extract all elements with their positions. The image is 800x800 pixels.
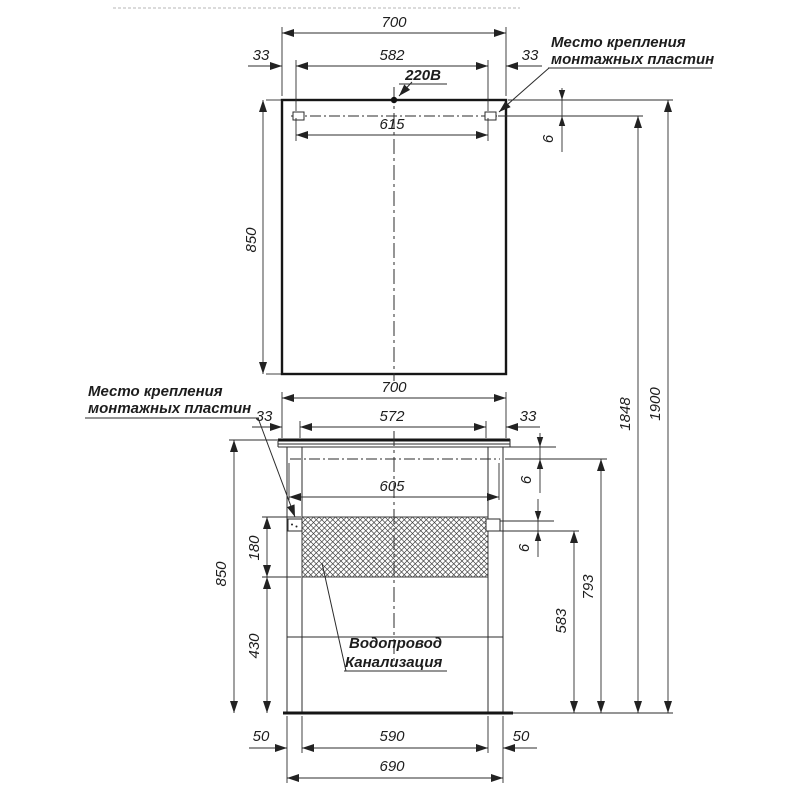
dim-base-width: 690: [379, 758, 405, 775]
dim-leg-left: 50: [253, 728, 270, 745]
dim-mirror-plate-gap: 6: [540, 134, 557, 143]
dim-mirror-plate-outer: 615: [379, 116, 405, 133]
dim-leg-right: 50: [513, 728, 530, 745]
plumbing-line1: Водопровод: [349, 635, 442, 652]
power-point-dot: [391, 97, 397, 103]
mirror-mount-plate-right: [485, 112, 496, 120]
power-callout: 220В: [399, 67, 447, 96]
dim-plate-height-from-floor: 583: [553, 608, 570, 634]
dim-mirror-width: 700: [381, 14, 407, 31]
vanity-mount-plate-right: [486, 519, 500, 531]
dim-vanity-offset-left: 33: [256, 408, 273, 425]
dim-mirror-plate-inner: 582: [379, 47, 405, 64]
mount-top-leader: [499, 68, 549, 112]
dim-mirror-offset-right: 33: [522, 47, 539, 64]
dim-leg-span: 590: [379, 728, 405, 745]
mount-top-line1: Место крепления: [551, 34, 686, 51]
plumbing-leader: [322, 563, 346, 671]
dim-service-zone-height: 180: [246, 535, 263, 561]
height-dimensions: 583 793 1848 1900: [553, 100, 668, 713]
dim-service-zone-to-floor: 430: [246, 633, 263, 659]
dim-vanity-offset-right: 33: [520, 408, 537, 425]
mount-left-line1: Место крепления: [88, 383, 223, 400]
technical-drawing: 220В Место крепления монтажных пластин 7…: [0, 0, 800, 800]
dim-mirror-offset-left: 33: [253, 47, 270, 64]
plumbing-line2: Канализация: [345, 654, 442, 671]
dim-mirror-plate-height: 1848: [617, 397, 634, 431]
dim-vanity-width: 700: [381, 379, 407, 396]
dim-vanity-top-gap: 6: [518, 475, 535, 484]
dim-vanity-height: 850: [213, 561, 230, 587]
vanity-mount-plate-left: [288, 519, 302, 531]
dim-mirror-height: 850: [243, 227, 260, 253]
dim-vanity-plate-outer: 605: [379, 478, 405, 495]
installation-drawing-page: 220В Место крепления монтажных пластин 7…: [0, 0, 800, 800]
plumbing-callout: Водопровод Канализация: [322, 563, 447, 671]
dim-mirror-top-height: 1900: [647, 387, 664, 421]
dim-mount-line-height: 793: [580, 574, 597, 600]
mount-left-line2: монтажных пластин: [88, 400, 251, 417]
power-label: 220В: [404, 67, 441, 84]
mount-label-left: Место крепления монтажных пластин: [85, 383, 295, 517]
mount-top-line2: монтажных пластин: [551, 51, 714, 68]
mirror-mount-plate-left: [293, 112, 304, 120]
dim-vanity-plate-gap: 6: [516, 543, 533, 552]
plumbing-zone-hatch: [302, 517, 488, 577]
dim-vanity-plate-inner: 572: [379, 408, 405, 425]
mount-left-leader: [258, 418, 295, 517]
